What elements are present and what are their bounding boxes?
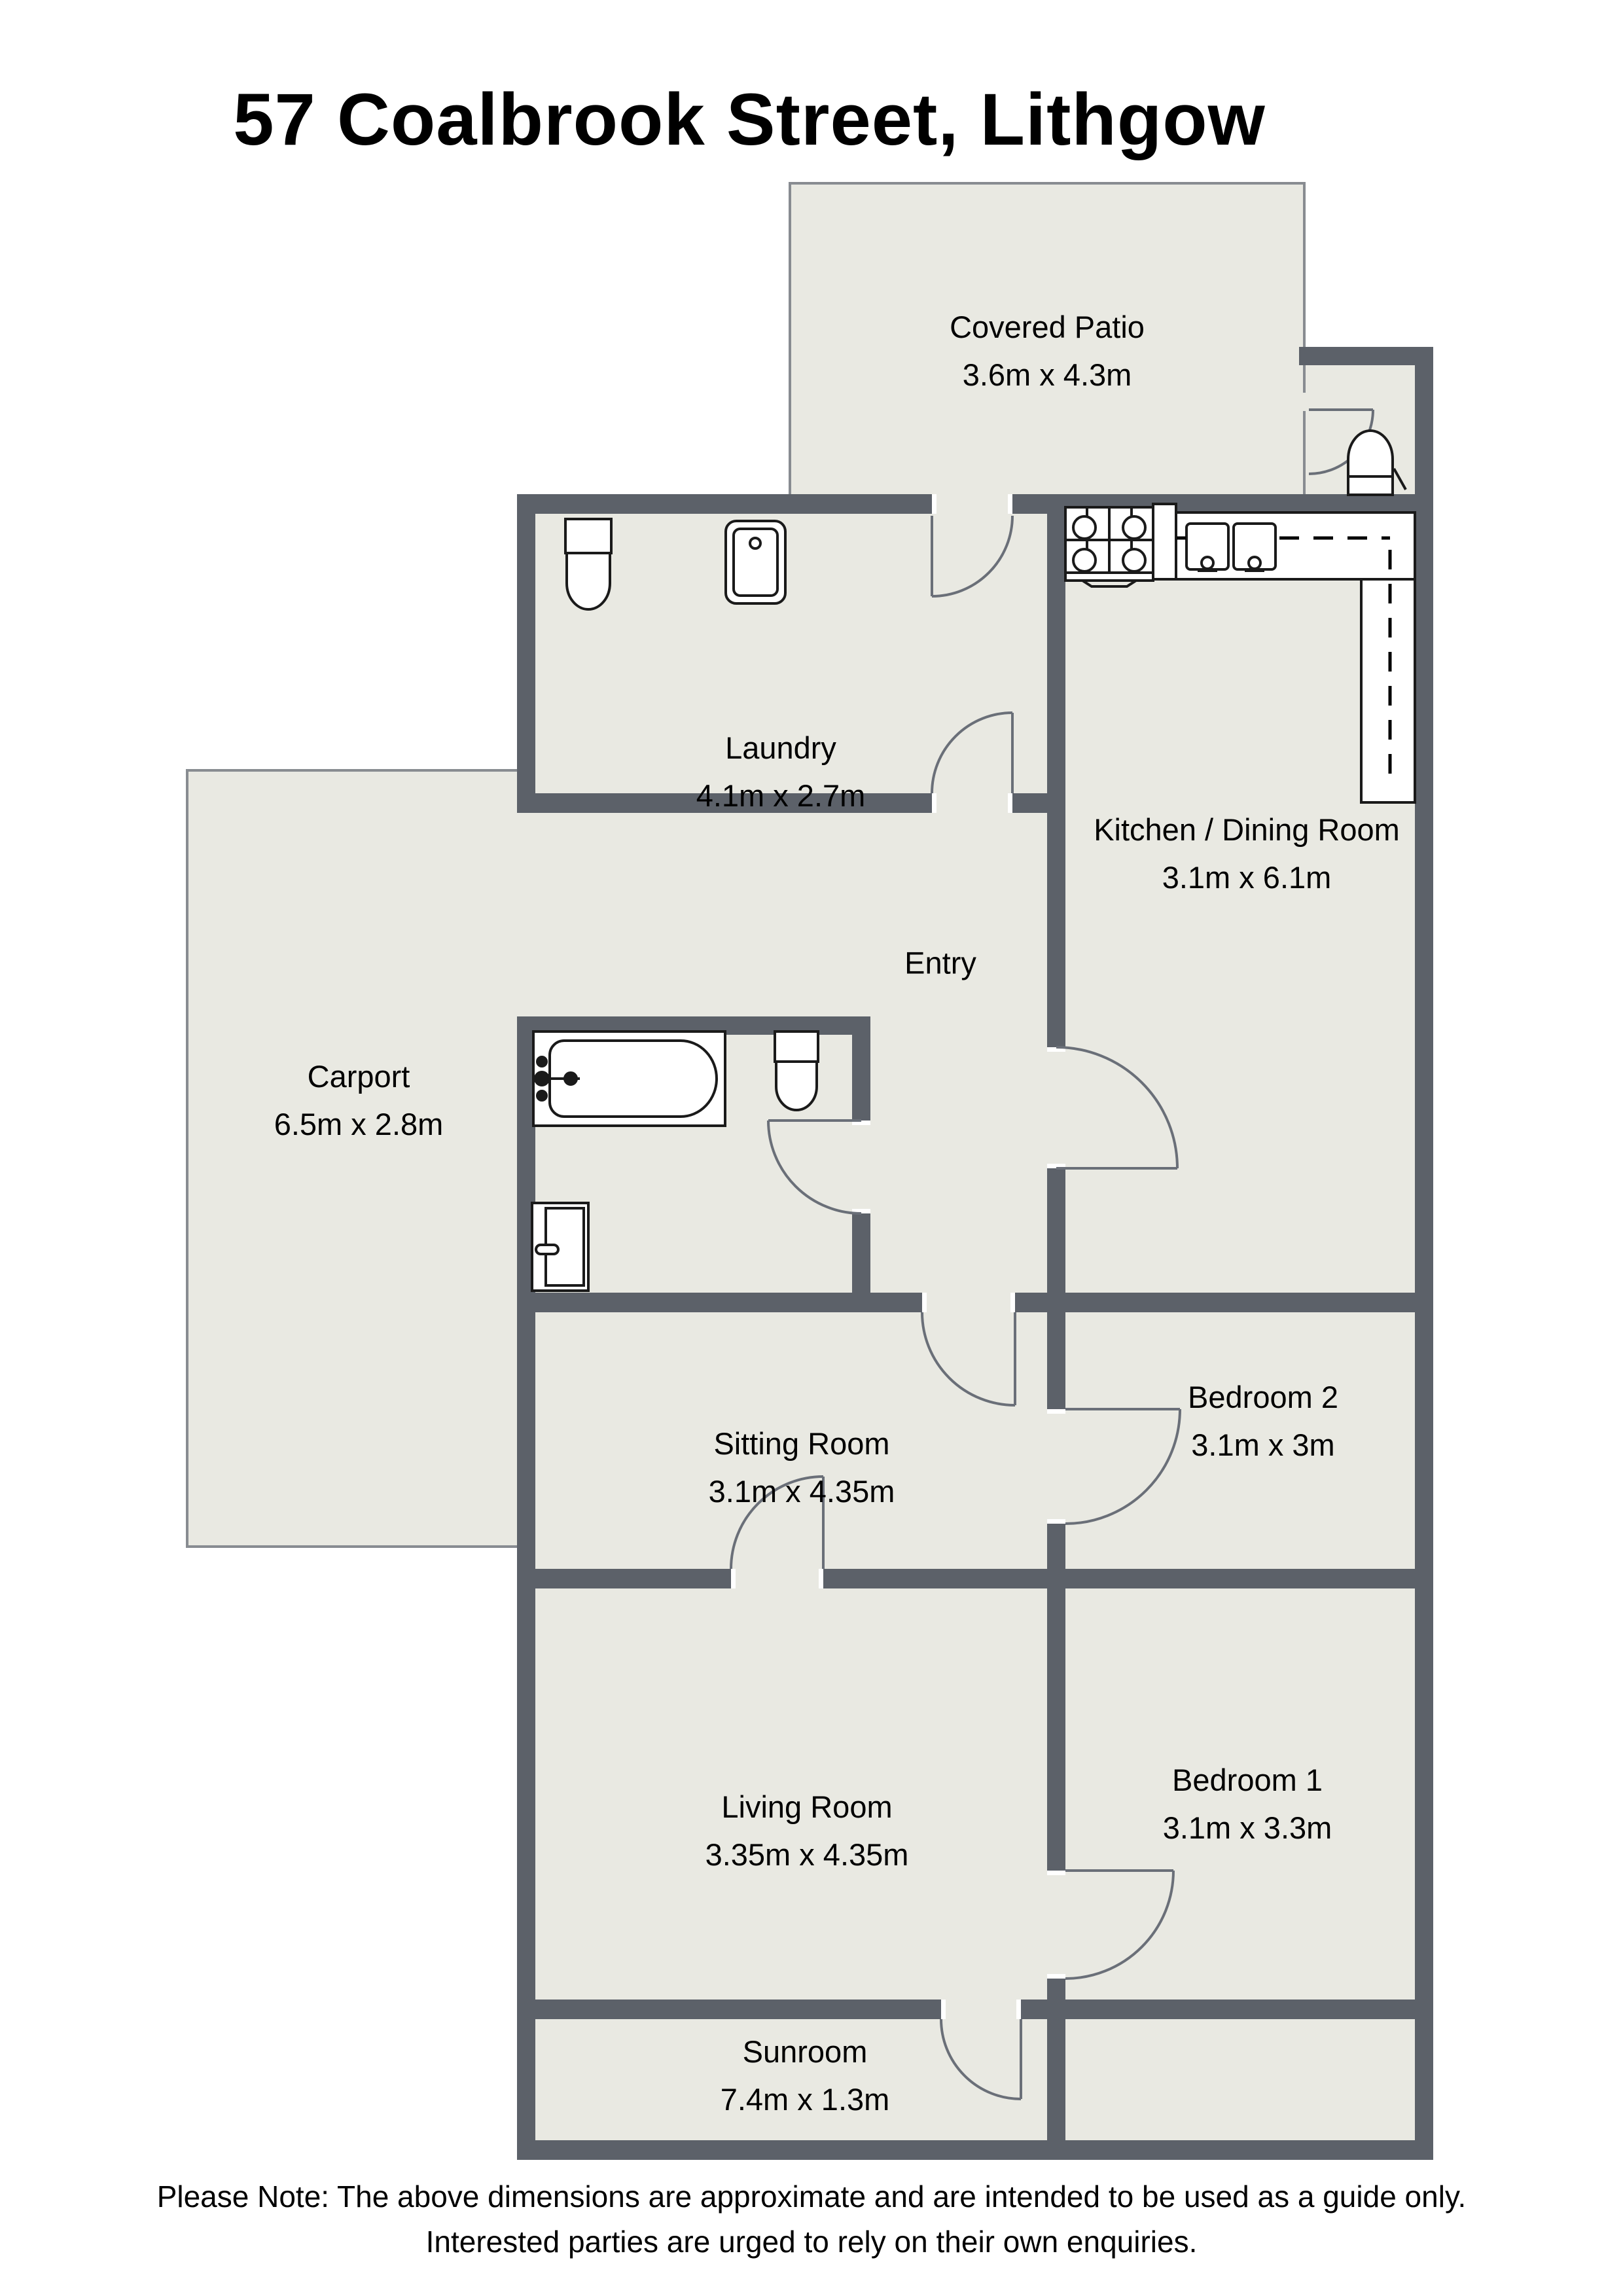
room-label-bedroom2: Bedroom 2 3.1m x 3m xyxy=(1188,1374,1338,1469)
water-heater-icon xyxy=(1348,431,1406,495)
kitchen-bench-icon xyxy=(1361,579,1415,802)
toilet-icon xyxy=(565,519,611,609)
room-label-bedroom1: Bedroom 1 3.1m x 3.3m xyxy=(1163,1757,1332,1852)
door-swing-bedroom2 xyxy=(1065,1409,1180,1524)
door-swing-laundry-patio xyxy=(932,516,1012,596)
room-label-carport: Carport 6.5m x 2.8m xyxy=(274,1053,444,1149)
room-label-sitting-room: Sitting Room 3.1m x 4.35m xyxy=(709,1420,895,1516)
floorplan-page: 57 Coalbrook Street, Lithgow xyxy=(0,0,1623,2296)
toilet-icon xyxy=(775,1031,818,1110)
room-label-kitchen-dining: Kitchen / Dining Room 3.1m x 6.1m xyxy=(1094,806,1400,902)
door-swing-bedroom1 xyxy=(1065,1871,1173,1979)
room-label-sunroom: Sunroom 7.4m x 1.3m xyxy=(721,2028,890,2124)
kitchen-cabinet-icon xyxy=(1153,504,1176,579)
disclaimer-line1: Please Note: The above dimensions are ap… xyxy=(157,2174,1467,2219)
disclaimer: Please Note: The above dimensions are ap… xyxy=(157,2174,1467,2265)
shower-icon xyxy=(532,1203,588,1291)
door-swing-kitchen xyxy=(1056,1047,1177,1168)
door-swing-laundry-entry xyxy=(932,713,1012,793)
laundry-tub-icon xyxy=(726,521,785,603)
disclaimer-line2: Interested parties are urged to rely on … xyxy=(157,2219,1467,2265)
door-swing-sitting-room xyxy=(922,1312,1015,1405)
stove-cooktop-icon xyxy=(1065,507,1153,586)
room-label-living-room: Living Room 3.35m x 4.35m xyxy=(705,1784,909,1879)
door-swing-sunroom xyxy=(941,2019,1021,2099)
door-swing-bathroom xyxy=(768,1121,861,1213)
room-label-covered-patio: Covered Patio 3.6m x 4.3m xyxy=(950,304,1145,399)
bathtub-icon xyxy=(533,1031,725,1126)
page-title: 57 Coalbrook Street, Lithgow xyxy=(233,77,1266,162)
room-label-laundry: Laundry 4.1m x 2.7m xyxy=(696,725,866,820)
room-label-entry: Entry xyxy=(904,940,976,988)
